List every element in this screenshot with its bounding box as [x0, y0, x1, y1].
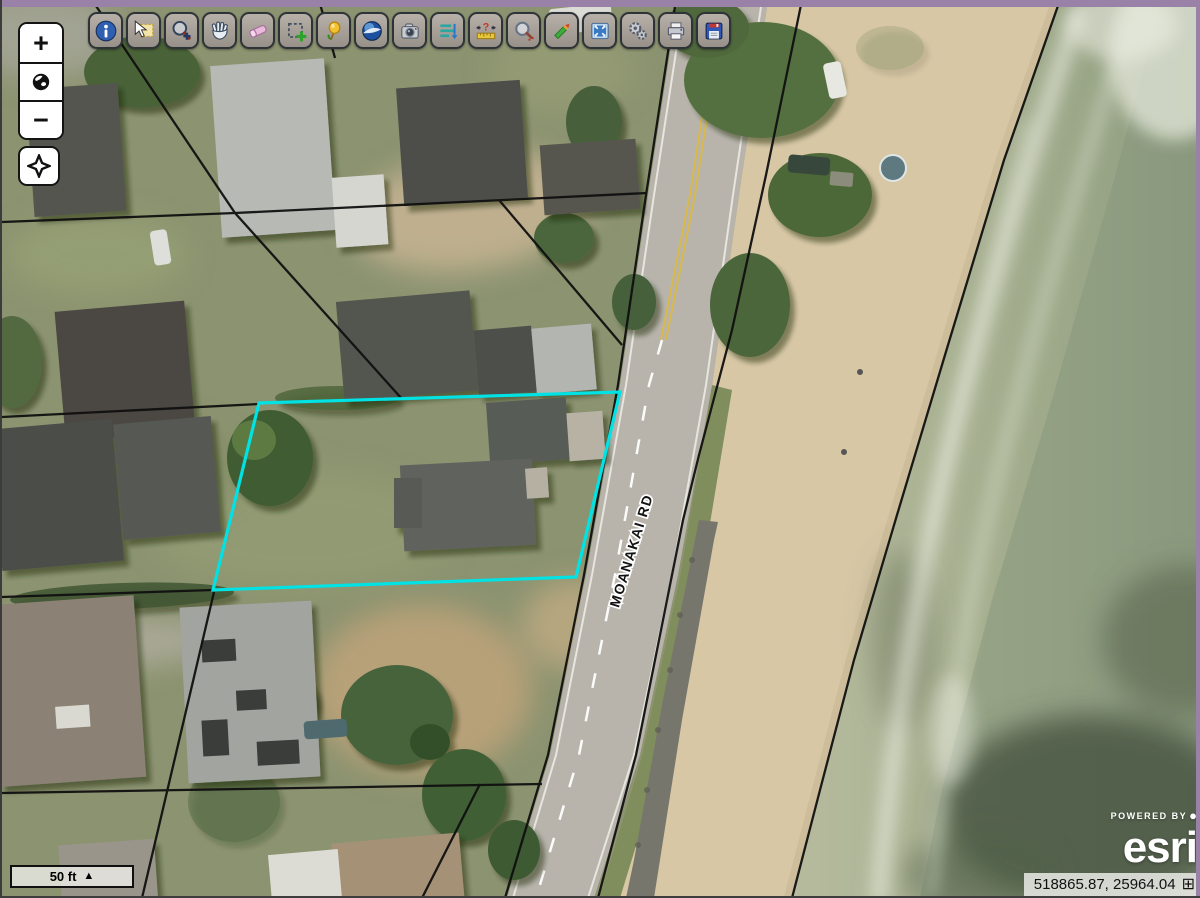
pan-button[interactable] [202, 12, 237, 49]
map-application: MOANAKAI RD [0, 0, 1200, 898]
window-right-bar [1196, 0, 1200, 896]
zoom-extent-button[interactable] [582, 12, 617, 49]
expand-coordinates-icon[interactable]: ⊞ [1182, 877, 1195, 893]
window-top-bar [2, 0, 1200, 7]
coordinate-bar: 518865.87, 25964.04 ⊞ [1024, 873, 1200, 896]
select-features-icon [132, 19, 156, 43]
locate-control[interactable] [18, 146, 60, 186]
pan-hand-icon [208, 19, 232, 43]
map-canvas[interactable]: MOANAKAI RD [2, 0, 1200, 898]
powered-by-label: POWERED BY [1111, 811, 1188, 821]
eraser-icon [246, 19, 270, 43]
photo-button[interactable] [392, 12, 427, 49]
print-icon [664, 19, 688, 43]
gears-icon [626, 19, 650, 43]
plus-icon: + [33, 30, 49, 57]
legend-button[interactable] [430, 12, 465, 49]
zoom-in-button[interactable] [164, 12, 199, 49]
locate-crosshair-icon [27, 154, 51, 178]
save-button[interactable] [696, 12, 731, 49]
minus-icon: − [33, 107, 49, 134]
info-icon [94, 19, 118, 43]
select-rectangle-icon [284, 19, 308, 43]
camera-icon [398, 19, 422, 43]
measure-button[interactable]: ? [468, 12, 503, 49]
zoom-in-control[interactable]: + [20, 24, 62, 62]
magnifier-icon [512, 19, 536, 43]
scale-bar: 50 ft ▲ [10, 865, 134, 888]
globe-3d-icon [360, 19, 384, 43]
globe-icon [30, 71, 52, 93]
home-extent-control[interactable] [20, 62, 62, 100]
select-features-button[interactable] [126, 12, 161, 49]
zoom-in-icon [170, 19, 194, 43]
esri-logo: esri [1111, 826, 1197, 870]
search-button[interactable] [506, 12, 541, 49]
save-icon [702, 19, 726, 43]
tools-button[interactable] [620, 12, 655, 49]
zoom-extent-icon [588, 19, 612, 43]
pencil-draw-icon [550, 19, 574, 43]
toolbar: ? [88, 12, 731, 49]
pushpin-button[interactable] [316, 12, 351, 49]
eraser-button[interactable] [240, 12, 275, 49]
zoom-out-control[interactable]: − [20, 100, 62, 138]
google-earth-button[interactable] [354, 12, 389, 49]
coordinate-readout: 518865.87, 25964.04 [1034, 876, 1176, 893]
pushpin-icon [322, 19, 346, 43]
select-rectangle-button[interactable] [278, 12, 313, 49]
info-button[interactable] [88, 12, 123, 49]
esri-attribution: POWERED BY● esri [1111, 809, 1197, 870]
legend-list-icon [436, 19, 460, 43]
print-button[interactable] [658, 12, 693, 49]
scale-bar-label: 50 ft [50, 869, 77, 884]
scale-bar-arrow-icon: ▲ [83, 871, 94, 882]
zoom-controls: + − [18, 22, 64, 140]
draw-button[interactable] [544, 12, 579, 49]
measure-icon: ? [474, 19, 498, 43]
svg-text:?: ? [482, 21, 489, 33]
